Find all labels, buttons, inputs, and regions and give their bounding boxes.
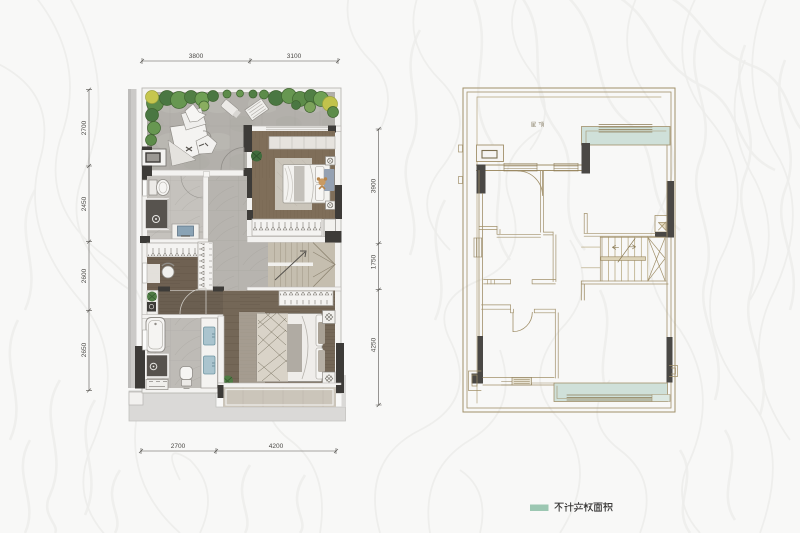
svg-text:2450: 2450 bbox=[81, 196, 88, 211]
svg-text:2700: 2700 bbox=[81, 120, 88, 135]
svg-text:3800: 3800 bbox=[189, 53, 204, 60]
svg-text:3900: 3900 bbox=[371, 178, 378, 193]
svg-text:3100: 3100 bbox=[287, 53, 302, 60]
svg-text:1750: 1750 bbox=[371, 254, 378, 269]
svg-text:2700: 2700 bbox=[171, 443, 186, 450]
svg-text:4250: 4250 bbox=[371, 337, 378, 352]
svg-text:4200: 4200 bbox=[269, 443, 284, 450]
svg-text:2650: 2650 bbox=[81, 342, 88, 357]
svg-text:2600: 2600 bbox=[81, 268, 88, 283]
